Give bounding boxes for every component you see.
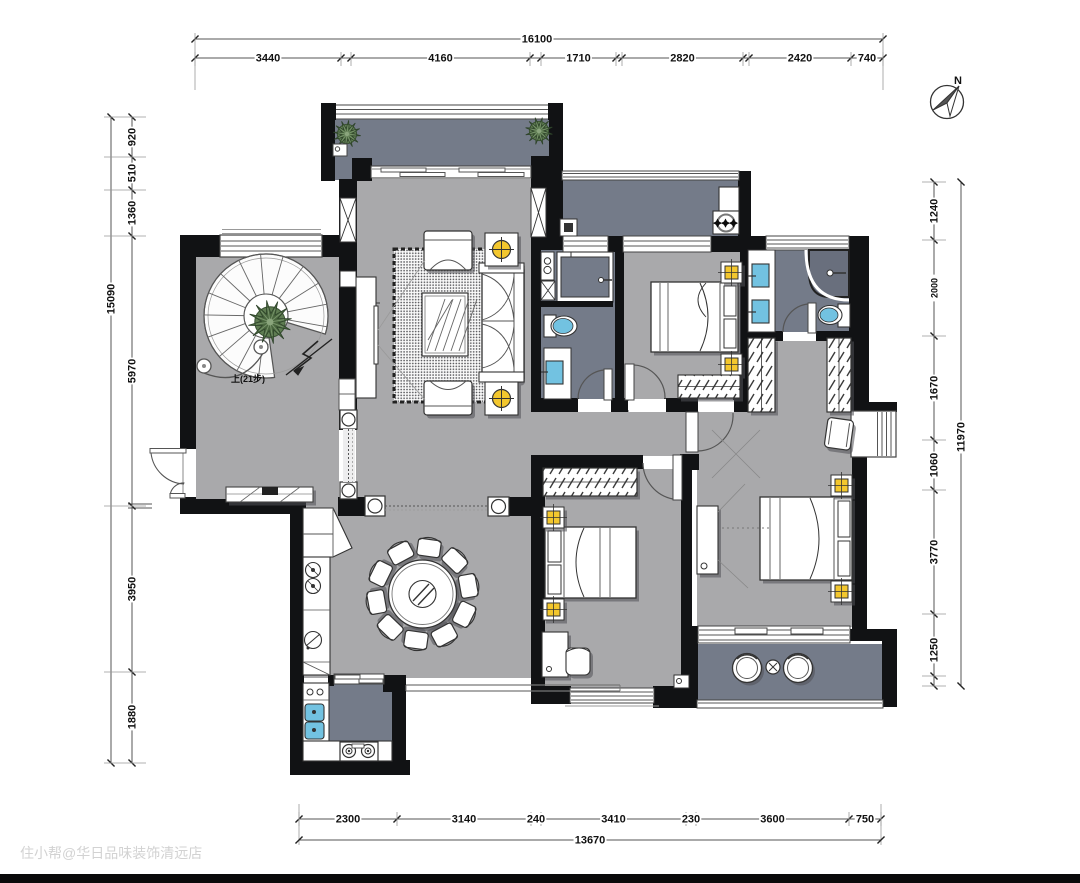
svg-text:11970: 11970 [956,422,968,452]
svg-text:1060: 1060 [929,453,941,477]
svg-text:1880: 1880 [127,705,139,729]
svg-text:1240: 1240 [929,199,941,223]
svg-text:230: 230 [682,814,700,826]
svg-text:上(21步): 上(21步) [231,373,265,384]
svg-text:3140: 3140 [452,814,476,826]
svg-text:3950: 3950 [127,577,139,601]
svg-text:16100: 16100 [522,34,553,46]
svg-text:2300: 2300 [336,814,360,826]
svg-text:3440: 3440 [256,53,280,65]
svg-text:4160: 4160 [428,53,452,65]
svg-text:750: 750 [856,814,874,826]
svg-text:3410: 3410 [601,814,625,826]
svg-text:5970: 5970 [127,359,139,383]
svg-text:3600: 3600 [760,814,784,826]
svg-text:1710: 1710 [566,53,590,65]
svg-text:240: 240 [527,814,545,826]
svg-text:920: 920 [127,128,139,146]
svg-text:住小帮@华日品味装饰清远店: 住小帮@华日品味装饰清远店 [20,845,202,861]
svg-text:2000: 2000 [930,278,940,298]
svg-text:510: 510 [127,164,139,182]
svg-text:3770: 3770 [929,540,941,564]
svg-text:N: N [954,75,962,87]
svg-text:15090: 15090 [106,284,118,315]
svg-text:1250: 1250 [929,638,941,662]
svg-text:13670: 13670 [575,835,606,847]
svg-text:1670: 1670 [929,376,941,400]
svg-text:740: 740 [858,53,876,65]
svg-text:2420: 2420 [788,53,812,65]
svg-text:2820: 2820 [670,53,694,65]
svg-text:1360: 1360 [127,201,139,225]
